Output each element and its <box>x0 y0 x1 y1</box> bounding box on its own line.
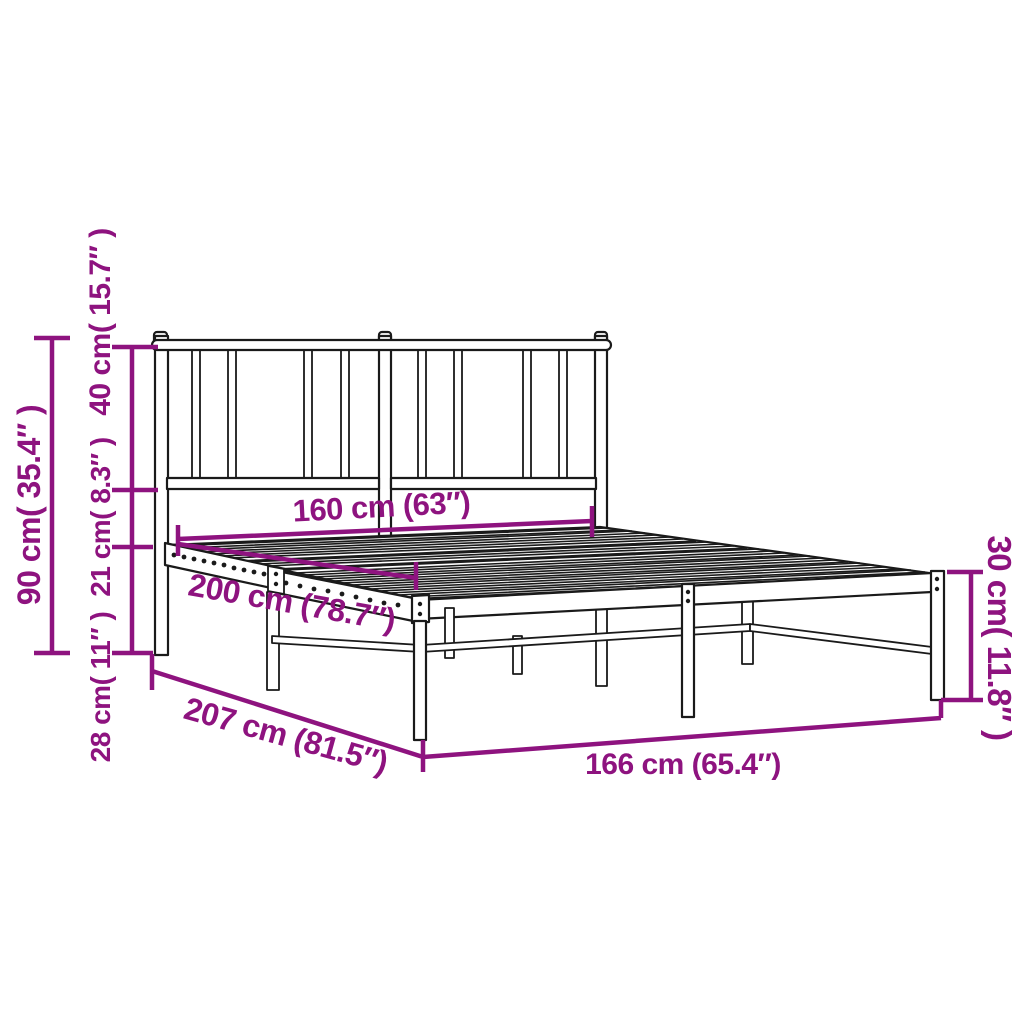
headboard-bottom-rail-left <box>167 478 379 489</box>
dim-mattress-width-label: 160 cm (63″) <box>292 484 471 528</box>
dim-headboard-height-label: 90 cm( 35.4″ ) <box>11 405 47 605</box>
headboard-top-rail <box>152 340 611 350</box>
brace-foot <box>421 624 750 652</box>
dim-headboard-height: 90 cm( 35.4″ ) <box>11 338 70 653</box>
dim-headboard-upper-label: 40 cm( 15.7″ ) <box>84 228 117 415</box>
dim-underbed-clearance-label: 28 cm( 11″ ) <box>85 612 116 763</box>
leg-foot-middle <box>682 584 694 717</box>
bed-frame-diagram: 90 cm( 35.4″ ) 40 cm( 15.7″ ) 21 cm( 8.3… <box>0 0 1024 1024</box>
dim-overall-width-label: 166 cm (65.4″) <box>585 748 781 781</box>
dim-overall-length: 207 cm (81.5″) <box>152 654 423 781</box>
diagram-canvas: 90 cm( 35.4″ ) 40 cm( 15.7″ ) 21 cm( 8.3… <box>0 0 1024 1024</box>
brace-near-side <box>272 636 421 652</box>
headboard-post-right <box>595 336 607 531</box>
brace-far-side <box>750 624 932 654</box>
dim-stacked-column: 40 cm( 15.7″ ) 21 cm( 8.3″ ) 28 cm( 11″ … <box>84 228 158 762</box>
leg-head-far <box>596 604 607 686</box>
headboard-post-left <box>155 336 168 655</box>
dim-platform-height: 30 cm( 11.8″ ) <box>941 535 1018 740</box>
corner-bracket-foot-near <box>412 595 429 623</box>
dim-frame-rail-label: 21 cm( 8.3″ ) <box>85 437 116 596</box>
leg-foot-near <box>414 621 426 740</box>
dim-platform-height-label: 30 cm( 11.8″ ) <box>981 535 1018 740</box>
